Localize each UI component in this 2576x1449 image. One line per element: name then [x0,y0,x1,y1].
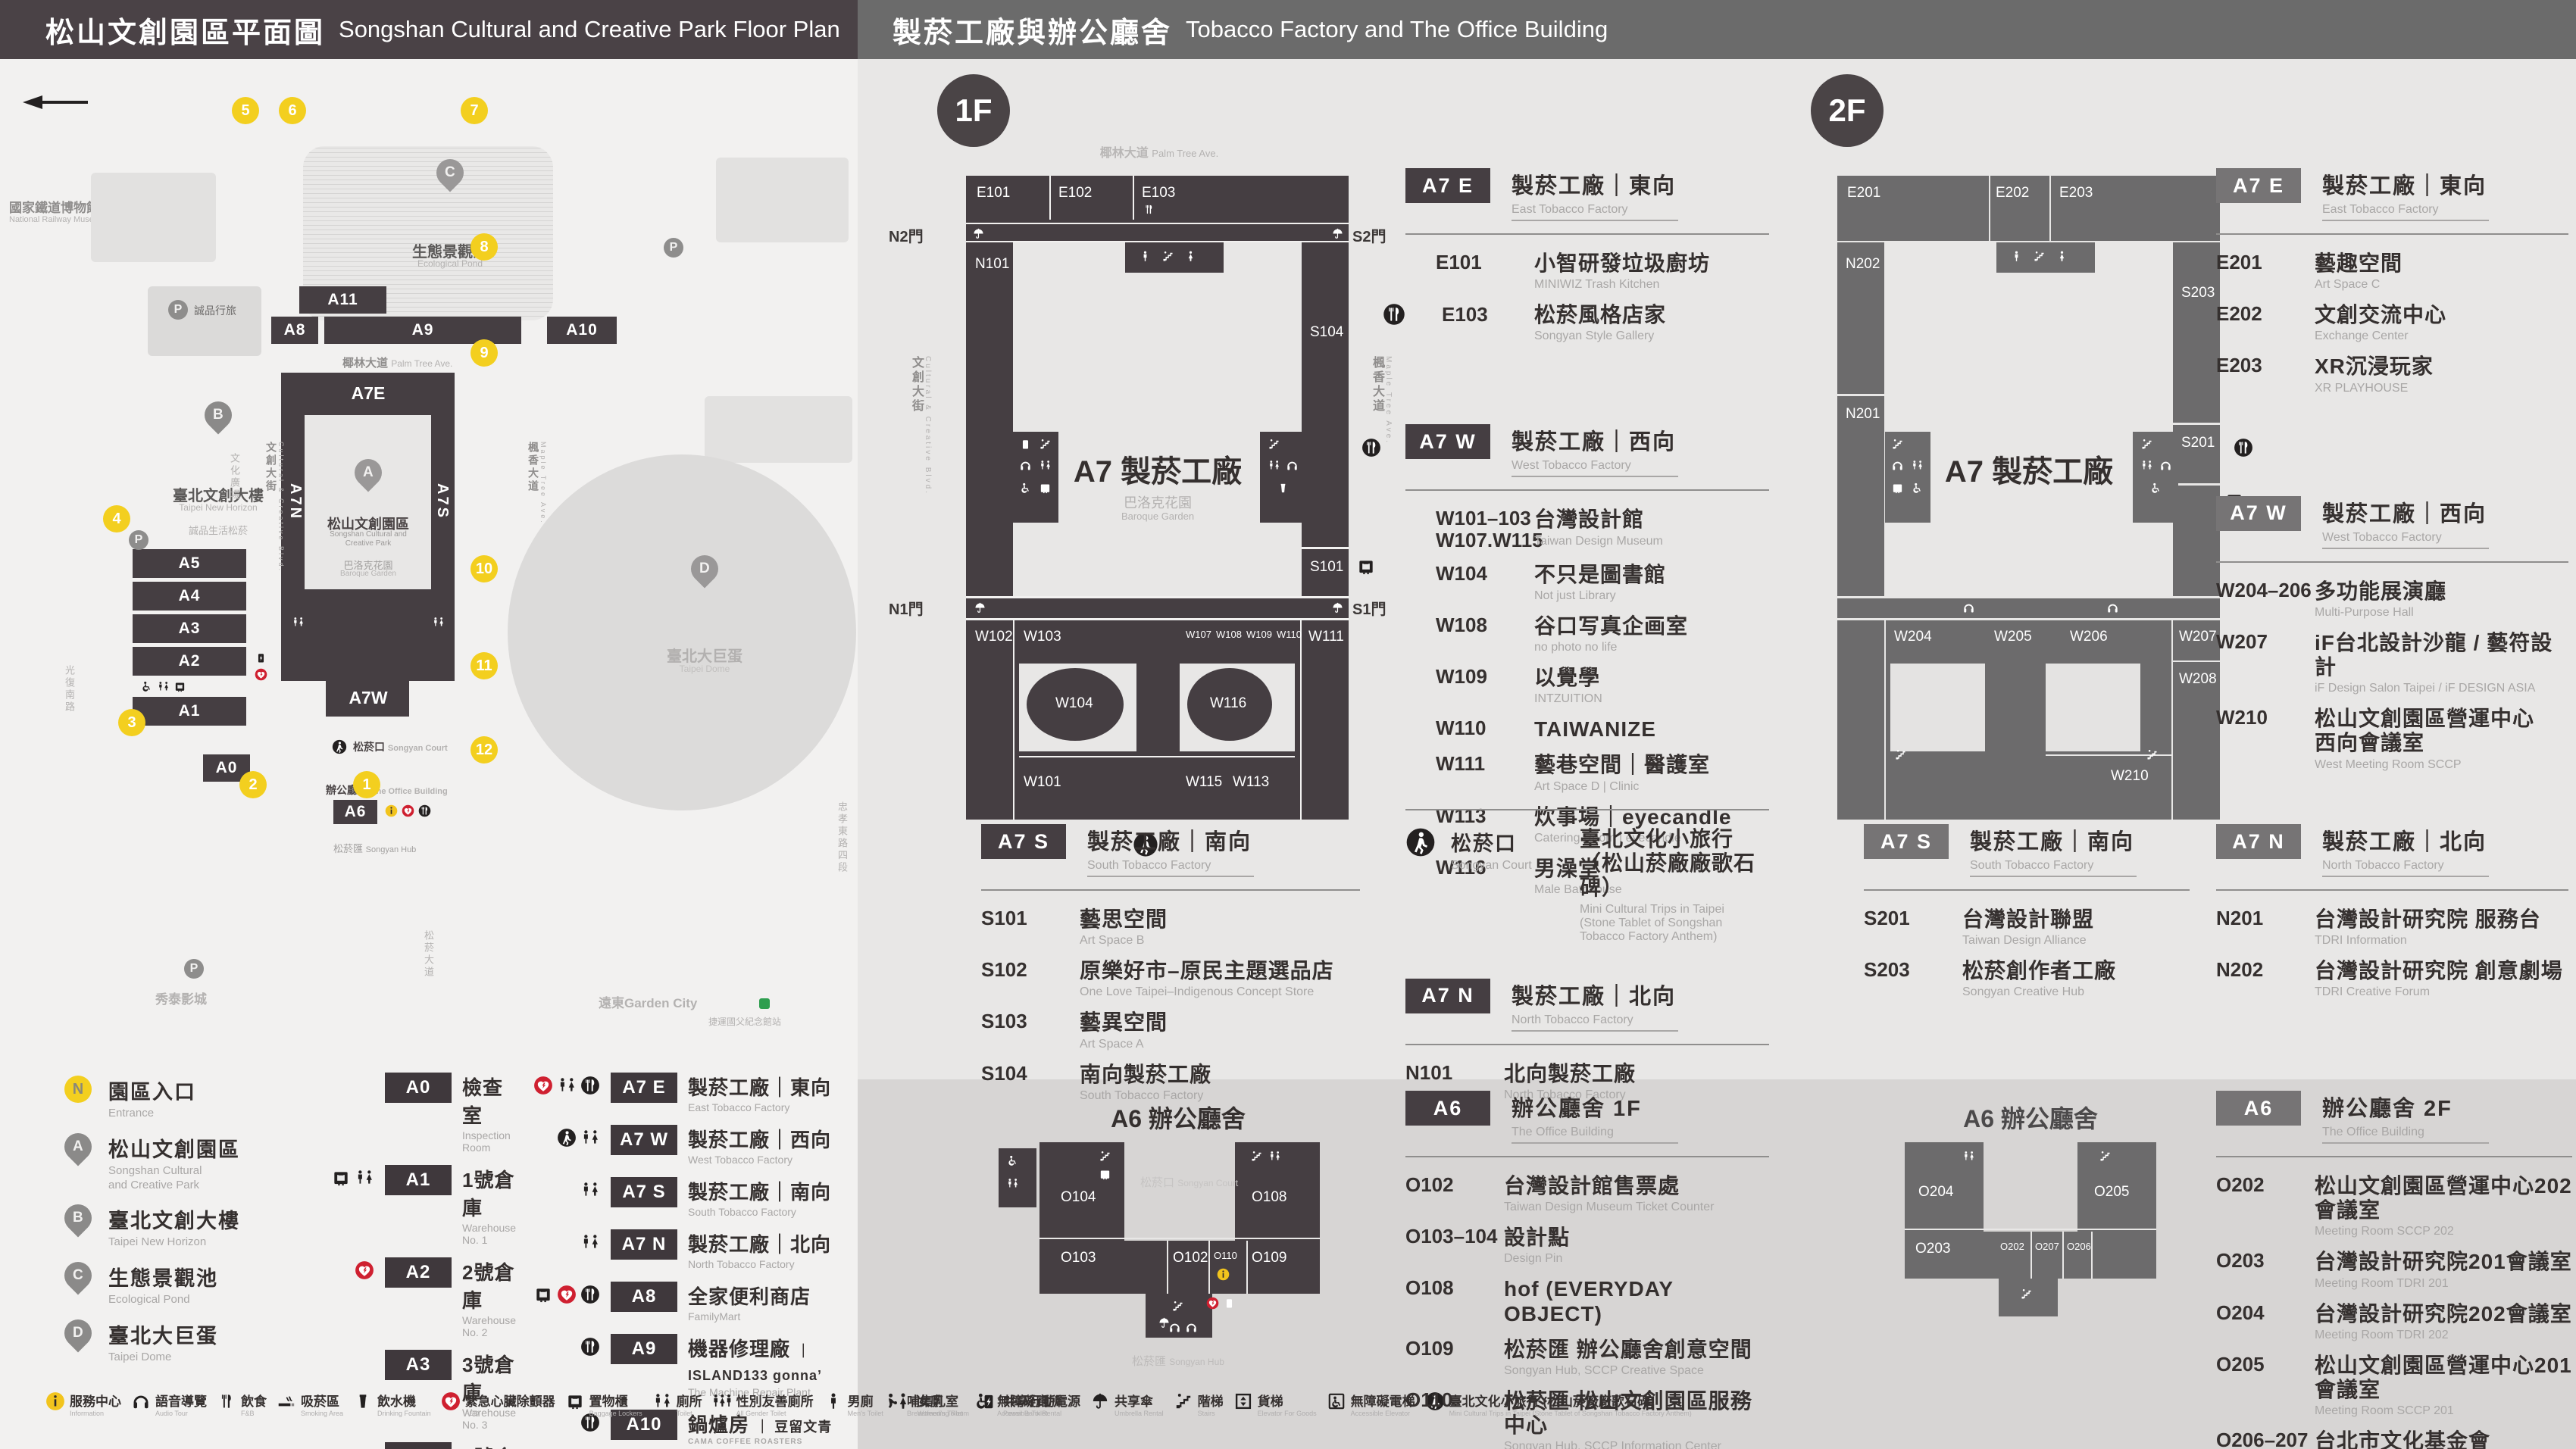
rm: W110 [1277,629,1302,640]
shape [2034,253,2043,261]
sec-zh: 製菸工廠｜西向 [2322,496,2489,528]
lbl: Ecological Pond [417,258,483,269]
shape [338,1184,339,1185]
shape: 製菸工廠｜南向South Tobacco Factory [1087,824,1254,877]
amzh: 共享行動電源 [1003,1391,1080,1410]
amzh: 階梯 [1198,1391,1224,1410]
shape [55,1399,57,1406]
shape [145,1402,148,1408]
rm: O108 [1252,1189,1286,1206]
shape: W108 [1436,614,1487,636]
gate: N2門 [889,224,924,246]
rm: E201 [1847,185,1880,201]
shape [1222,1270,1224,1272]
shape [1405,354,1769,424]
stairs-icon [1161,250,1174,263]
wln [1302,547,1349,549]
shape [439,620,443,626]
lbl: 楓香大道 [1368,356,1386,414]
rm: W101 [1024,774,1061,791]
audio-icon [131,1391,151,1411]
shape: 生態景觀池Ecological Pond [108,1262,218,1307]
ic [2020,1288,2033,1301]
songyan-court-entry: 松菸口 Songyan Court 臺北文化小旅行 （松山菸廠廠歌石碑） Min… [1405,827,1769,944]
toilet-icon [580,1128,600,1148]
entrance-2: 2 [239,771,267,798]
shape [337,1175,345,1181]
shape [1144,251,1146,254]
wln [1013,620,1014,820]
entrance-7: 7 [461,97,488,124]
shape [1913,464,1915,470]
room-name: 台灣設計研究院201會議室Meeting Room TDRI 201 [2315,1250,2572,1290]
amenity-item: 飲食F&B [217,1391,267,1417]
ic [1217,1268,1230,1281]
ic [2106,601,2119,614]
shape [1965,605,1973,609]
info-icon [1217,1268,1230,1281]
rm: E103 [1142,185,1175,201]
shape: S104 [981,1063,1027,1085]
legend-icons [521,1073,600,1095]
wln2 [1246,1241,1248,1294]
rzh: 松菸匯 辦公廳舍創意空間 [1504,1338,1752,1362]
fountain-icon [1277,482,1290,495]
pzh: 生態景觀池 [108,1262,218,1291]
shape: O103–104 [1405,1226,1497,1248]
shape [1008,1179,1011,1181]
listing-row: E201 藝趣空間Art Space C [2216,251,2568,292]
col: A7 E 製菸工廠｜東向East Tobacco Factory E201 藝趣… [2216,168,2568,783]
ic [1383,303,1405,326]
shape [584,1187,588,1196]
room-code: E203 [2216,354,2315,376]
wln [966,223,1349,224]
shape: 製菸工廠｜西向West Tobacco Factory [2322,496,2489,549]
room-code: N201 [2216,907,2315,929]
shape: 全家便利商店FamilyMart [688,1282,811,1323]
rzh: 台灣設計研究院 創意劇場 [2315,959,2563,983]
amenity-item: 性別友善廁所All Gender Toilet [712,1391,814,1417]
shape [294,620,296,626]
shape [2149,461,2151,463]
entrance-5: 5 [232,97,259,124]
amzh: 廁所 [677,1391,702,1410]
room-code: S104 [981,1063,1080,1085]
shape: S102 [981,959,1027,981]
shape: 製菸工廠｜北向North Tobacco Factory [688,1229,831,1270]
audio-icon [1891,459,1904,472]
shape [1363,573,1365,574]
shape: N201 [2216,907,2263,929]
c2: W107.W115 [1436,529,1534,551]
shape [561,1078,564,1081]
shape [1270,461,1272,463]
shape [2142,441,2151,449]
sec-h: A7 N 製菸工廠｜北向North Tobacco Factory [2216,824,2568,877]
rm: O203 [1915,1241,1950,1257]
shape [714,1394,717,1407]
room-code: O102 [1405,1174,1504,1196]
accessible-icon [2149,482,2162,495]
sec-zh: 辦公廳舍 2F [2322,1091,2489,1123]
rzh: 臺北文化小旅行 [1580,827,1769,851]
shape [1144,255,1147,261]
stairs-icon [1171,1300,1184,1313]
room-name: 藝異空間Art Space A [1080,1010,1168,1051]
lbl: 捷運國父紀念館站 [708,1015,781,1028]
rm: W113 [1233,774,1269,791]
shape: B [73,1210,83,1226]
shape: 製菸工廠｜西向West Tobacco Factory [688,1125,831,1166]
ren: Taiwan Design Museum [1534,535,1663,548]
shape [224,1394,225,1407]
shape [2108,608,2110,612]
lbl: 誠品行旅 [194,303,236,318]
room-name: 松山文創園區營運中心西向會議室West Meeting Room SCCP [2315,707,2534,771]
lzh: 2號倉庫 [462,1257,523,1313]
room-code: O204 [2216,1302,2315,1324]
dk2 [2133,432,2178,523]
amen: AED [465,1410,555,1417]
shape: 松山文創園區Songshan Culturaland Creative Park [108,1133,240,1193]
ic [1911,482,1924,495]
shape: 製菸工廠｜南向South Tobacco Factory [688,1177,831,1218]
shape [592,1186,598,1196]
pin-b: B [59,1199,98,1238]
shape: W111 [1436,753,1485,775]
hr [1405,489,1769,491]
pzh: 臺北大巨蛋 [108,1319,218,1349]
lbl: 松菸口 Songyan Court [353,739,448,754]
listing-row: W104 不只是圖書館Not just Library [1436,563,1769,603]
shape [714,1394,717,1397]
shape [656,1394,660,1407]
rzh: 松山文創園區營運中心202會議室 [2315,1174,2572,1223]
rm: E101 [977,185,1010,201]
shape: CAMA COFFEE ROASTERS [688,1438,832,1446]
pin-b: B [199,396,238,435]
shape: D [699,561,710,577]
shape [1252,1153,1261,1161]
shape [1176,1396,1190,1408]
amen: Breastfeeding Room [907,1410,969,1417]
shape [439,617,443,626]
wln [1300,620,1302,820]
amzh: 貨梯 [1258,1391,1317,1410]
map-a10: A10 [547,317,617,344]
building-badge: A1 [385,1165,452,1195]
shape [1008,1182,1011,1188]
shape: 製菸工廠｜東向East Tobacco Factory [1512,168,1678,221]
toilet-icon [1268,1150,1281,1163]
map-a3: A3 [133,614,246,643]
floorplan-1f: 椰林大道 Palm Tree Ave. E101 E102 E103 N2門 S… [943,129,1375,879]
shape [894,1401,897,1404]
shape: D [73,1325,83,1341]
blk [91,173,216,262]
sec-h: A7 E 製菸工廠｜東向East Tobacco Factory [1405,168,1769,221]
room-code: O109 [1405,1338,1504,1360]
rm: W116 [1210,695,1246,712]
shape [664,1397,669,1407]
shape: 松菸匯 [1132,1355,1166,1368]
len: South Tobacco Factory [688,1206,831,1218]
section-title-zh: 製菸工廠與辦公廳舍 [893,9,1172,51]
faint: Songyan Court [388,744,448,753]
page-title-en: Songshan Cultural and Creative Park Floo… [339,16,840,43]
lbl: Cultural & Creative Blvd. [924,356,932,495]
shape [1275,463,1279,469]
lbl: 忠孝東路四段 [835,801,849,874]
shape [1405,944,1769,979]
rm: O207 [2035,1241,2059,1252]
rm: W204 [1894,629,1932,645]
shape [2143,464,2145,470]
ic [533,1285,553,1304]
shape: E201 藝趣空間Art Space C E202 文創交流中心Exchange… [2216,251,2568,395]
women-icon [2055,250,2068,263]
shape [1276,461,1278,463]
stairs-icon [1099,1150,1111,1163]
shape [831,1393,835,1397]
shape [2143,461,2145,469]
shape [419,805,431,817]
legend-building: A9 機器修理廠 ｜ ISLAND133 gonna’The Machine R… [521,1334,858,1398]
legend-poi: B 臺北文創大樓Taipei New Horizon [64,1204,292,1250]
lzh: 製菸工廠｜西向 [688,1125,831,1153]
dk2 [1837,598,2220,618]
legend-poi: C 生態景觀池Ecological Pond [64,1262,292,1307]
shape: Songyan Hub [1169,1357,1224,1367]
shape: O203 [2216,1250,2265,1272]
amenity-item: 吸菸區Smoking Area [277,1391,343,1417]
pin-a: A [59,1127,98,1166]
room-name: 藝巷空間｜醫護室Art Space D | Clinic [1534,753,1710,793]
shape [1046,492,1047,493]
rzh: 松菸匯 松山文創園區服務中心 [1504,1389,1769,1438]
amen: Baggage Lockers [589,1410,642,1417]
locker-icon [174,680,186,693]
shape [561,1078,564,1091]
room-name: 松菸匯 松山文創園區服務中心Songyan Hub, SCCP Informat… [1504,1389,1769,1449]
pin-c: C [59,1257,98,1295]
ren: Meeting Room TDRI 202 [2315,1329,2572,1342]
shape [358,1175,362,1184]
listing-row: W111 藝巷空間｜醫護室Art Space D | Clinic [1436,753,1769,793]
shape: E103 [1442,304,1488,326]
ren: TDRI Creative Forum [2315,985,2563,999]
tour-icon [332,739,347,754]
shape [592,1182,598,1195]
shape: O102 台灣設計館售票處Taiwan Design Museum Ticket… [1405,1174,1769,1449]
rm: W102 [975,629,1013,645]
listing-row: O110 松菸匯 松山文創園區服務中心Songyan Hub, SCCP Inf… [1405,1389,1769,1449]
lbl: 椰林大道 Palm Tree Ave. [1100,142,1218,161]
ren: Mini Cultural Trips in Taipei [1580,903,1769,917]
men-icon [824,1391,843,1411]
rzh: 藝異空間 [1080,1010,1168,1035]
toilet-icon [1268,459,1280,472]
shape: Songyan Hub [366,845,417,854]
ic [2140,438,2153,451]
goodslift-icon [1233,1391,1253,1411]
sec-en: East Tobacco Factory [1512,203,1678,221]
lbl: 松菸匯 Songyan Hub [333,841,416,855]
entrance-3: 3 [118,709,145,736]
rzh: hof (EVERYDAY OBJECT) [1504,1277,1769,1326]
pen: Songshan Culturaland Creative Park [108,1164,240,1193]
shape: 男廁Men's Toilet [848,1391,883,1417]
tour-icon [557,1128,577,1148]
ren: Art Space D | Clinic [1534,780,1710,794]
shape [569,1078,574,1091]
shape [576,1407,577,1409]
ren: Songyan Style Gallery [1534,329,1666,343]
entrance-4: 4 [103,505,130,532]
rzh: 設計點 [1504,1226,1570,1250]
shape: S103 [981,1010,1027,1032]
shape [294,617,296,620]
building-badge: A8 [611,1282,677,1312]
shape [1281,484,1285,492]
sec-en: North Tobacco Factory [1512,1013,1678,1032]
shape [1189,254,1193,261]
ic [1006,1154,1019,1167]
ic [2146,748,2159,761]
gate: S1門 [1352,597,1386,619]
ic [557,1128,577,1148]
shape [1010,1156,1012,1158]
fountain-icon [353,1391,373,1411]
shape [1096,1401,1101,1409]
ic [972,227,985,240]
map-a5: A5 [133,549,246,578]
ic [1039,459,1052,472]
lt2 [2046,664,2140,751]
shape [539,1291,547,1298]
shape [367,1174,372,1184]
shape [1046,463,1050,469]
room-name: 以覺學INTZUITION [1534,666,1602,706]
amen: Drinking Fountain [377,1410,431,1417]
legend-icons [295,1442,374,1445]
amzh: 哺集乳室 [907,1391,969,1410]
lbl: 文創大街 [264,442,279,493]
shape: 椰林大道 [1100,147,1149,160]
accessible-icon [1911,482,1924,495]
sec-h: A7 S 製菸工廠｜南向South Tobacco Factory [981,824,1360,877]
north-arrow-tail [42,101,88,104]
lbl: Cultural & Creative Blvd. [277,442,285,573]
ren: Art Space A [1080,1038,1168,1051]
shape [581,1285,599,1304]
ic [2099,1150,2112,1163]
shape [440,617,442,620]
toilet-icon [1006,1177,1019,1190]
shape [228,1394,231,1407]
lzh: 機器修理廠 ｜ ISLAND133 gonna’ [688,1334,858,1385]
amzh: 置物櫃 [589,1391,642,1410]
stairs-icon [1894,748,1907,761]
ren: no photo no life [1534,641,1688,654]
gate: S2門 [1352,224,1386,246]
ic [883,1391,902,1411]
lbl: A6 辦公廳舍 [1111,1100,1246,1135]
rm: O109 [1252,1250,1286,1266]
rzh: 多功能展演廳 [2315,579,2446,604]
shape: 1號倉庫Warehouse No. 1 [462,1165,523,1246]
page-title-zh: 松山文創園區平面圖 [45,9,325,51]
faint: Palm Tree Ave. [391,358,452,369]
ic [1891,459,1904,472]
shape: O204 [2216,1302,2265,1324]
shape [1099,1394,1101,1396]
ic [1331,227,1344,240]
north-arrow-icon [23,95,42,109]
ic [2159,459,2172,472]
shape: 製菸工廠｜北向North Tobacco Factory [1512,979,1678,1032]
ic [174,680,186,693]
shape: 松菸口 [1140,1176,1174,1189]
shape [2168,466,2171,470]
shape [226,1394,227,1398]
pin-d: D [59,1313,98,1352]
amzh: 服務中心 [70,1391,121,1410]
ic [255,651,267,664]
shape [976,234,979,239]
legend-icons [295,1257,374,1280]
lbl: 遠東Garden City [599,992,697,1011]
rm: E202 [1996,185,2029,201]
rzh: 小智研發垃圾廚坊 [1534,251,1710,276]
shape [586,1079,586,1082]
shape [584,1235,587,1238]
toilet-icon [157,680,170,693]
rm: W208 [2179,671,2217,688]
accessible-icon [1006,1154,1019,1167]
wln2 [1167,1241,1168,1294]
room-code: O110 [1405,1389,1504,1411]
room-code: N202 [2216,959,2315,981]
shape: 辦公廳舍 2FThe Office Building [2322,1091,2489,1144]
sec-en: East Tobacco Factory [2322,203,2489,221]
shape: ｜ ISLAND133 gonna’ [688,1344,822,1383]
ic [1168,1321,1181,1334]
shape: N202 [2216,959,2263,981]
listing-row: O206–207 台北市文化基金會松山文創園區營運中心Taipei Cultur… [2216,1429,2572,1449]
room-name: 松菸匯 辦公廳舍創意空間Songyan Hub, SCCP Creative S… [1504,1338,1752,1378]
shape [1100,1153,1109,1161]
ic [441,1391,461,1411]
ic [2055,250,2068,263]
fnb-icon [418,804,431,817]
rm: E102 [1058,185,1092,201]
legend-icons [295,1350,374,1353]
room-code: E202 [2216,303,2315,325]
shape [584,1235,588,1248]
ren: (Stone Tablet of Songshan Tobacco Factor… [1580,917,1769,944]
shape [1896,492,1897,493]
fnbplain-icon [217,1391,236,1411]
room-name: 台灣設計研究院202會議室Meeting Room TDRI 202 [2315,1302,2572,1342]
shape [592,1235,598,1248]
shape: 製菸工廠｜南向South Tobacco Factory [1970,824,2137,877]
rzh: XR沉浸玩家 [2315,354,2434,379]
ic [557,1285,577,1304]
shape: O109 [1405,1338,1454,1360]
dk [966,242,1013,597]
